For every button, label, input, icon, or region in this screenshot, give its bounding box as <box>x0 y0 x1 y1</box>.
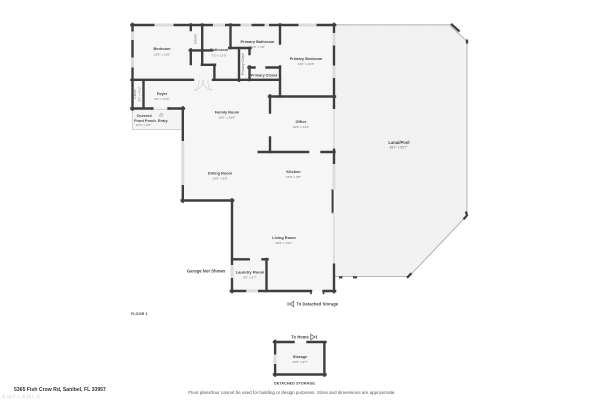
svg-text:3'0" x 4'10": 3'0" x 4'10" <box>137 86 141 101</box>
svg-text:10'8" x 9'8": 10'8" x 9'8" <box>212 177 227 181</box>
svg-text:Primary Closet: Primary Closet <box>241 53 245 75</box>
svg-text:Primary Closet: Primary Closet <box>251 73 278 77</box>
svg-text:Living Room: Living Room <box>272 236 296 240</box>
svg-text:To Home: To Home <box>291 335 309 340</box>
svg-text:Lanai/Pool: Lanai/Pool <box>388 140 409 145</box>
svg-text:Dining Room: Dining Room <box>208 172 233 176</box>
svg-text:Bathroom: Bathroom <box>210 48 229 52</box>
svg-text:Family Room: Family Room <box>215 111 240 115</box>
svg-text:Primary Bathroom: Primary Bathroom <box>241 40 276 44</box>
svg-text:Covered: Covered <box>137 114 153 118</box>
svg-text:Closet: Closet <box>193 34 197 44</box>
svg-text:To Detached Storage: To Detached Storage <box>297 302 339 307</box>
svg-text:9'5" x 6'7": 9'5" x 6'7" <box>243 275 257 279</box>
svg-text:13'0" x 16'8": 13'0" x 16'8" <box>298 62 315 66</box>
svg-text:12'8" x 11'4": 12'8" x 11'4" <box>293 125 310 129</box>
svg-text:15'9" x 9'8": 15'9" x 9'8" <box>286 175 301 179</box>
svg-text:Laundry Room: Laundry Room <box>236 270 265 275</box>
svg-text:13'5" x 11'5": 13'5" x 11'5" <box>154 53 171 57</box>
svg-text:Bedroom: Bedroom <box>153 47 171 51</box>
svg-text:10'0" x 4'5": 10'0" x 4'5" <box>136 123 151 127</box>
svg-text:7'2" x 13'6": 7'2" x 13'6" <box>211 54 226 58</box>
svg-text:Storage: Storage <box>293 355 308 359</box>
svg-text:SWFLAMLS: SWFLAMLS <box>2 395 41 400</box>
svg-text:28'1" x 55'7": 28'1" x 55'7" <box>390 146 409 150</box>
svg-text:15'5" x 9'7": 15'5" x 9'7" <box>292 360 307 364</box>
svg-text:18'0" x 15'8": 18'0" x 15'8" <box>219 116 236 120</box>
svg-text:8'4" x 9'10": 8'4" x 9'10" <box>154 97 169 101</box>
svg-text:Office: Office <box>295 120 306 124</box>
svg-text:DETACHED STORAGE: DETACHED STORAGE <box>274 381 315 385</box>
svg-text:5365 Fish Crow Rd, Sanibel, FL: 5365 Fish Crow Rd, Sanibel, FL 33957 <box>14 387 106 393</box>
svg-text:20'6" x 19'4": 20'6" x 19'4" <box>276 241 293 245</box>
svg-text:10'0" x 4'9": 10'0" x 4'9" <box>250 45 265 49</box>
svg-text:Floor plans/tour cannot be use: Floor plans/tour cannot be used for buil… <box>188 390 395 395</box>
svg-text:FLOOR 1: FLOOR 1 <box>131 312 148 316</box>
svg-text:Foyer: Foyer <box>157 92 168 96</box>
svg-text:Primary Bedroom: Primary Bedroom <box>290 57 323 61</box>
svg-text:Kitchen: Kitchen <box>286 170 301 174</box>
svg-text:Garage Not Shown: Garage Not Shown <box>187 269 226 274</box>
